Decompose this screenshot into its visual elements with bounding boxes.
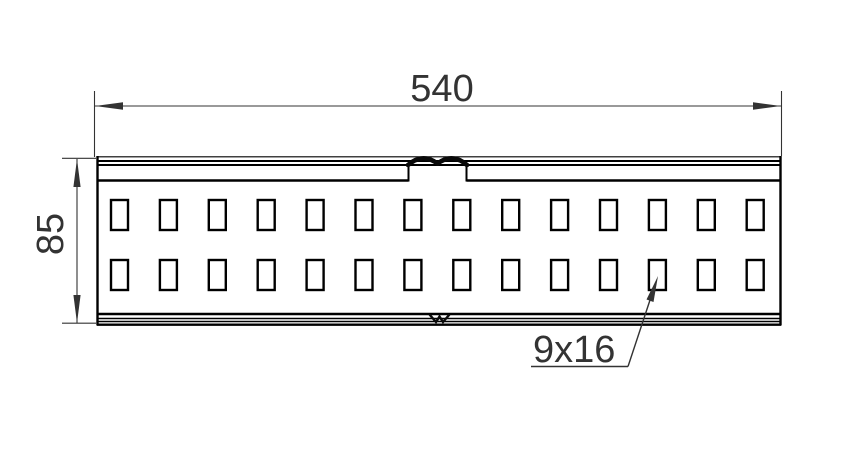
slot-hole [209,200,226,230]
slot-hole [502,260,519,290]
slot-hole [747,260,764,290]
slot-hole [160,260,177,290]
slot-size-label: 9x16 [533,329,615,371]
dimension-arrow-up-icon [73,159,80,187]
slot-hole [160,200,177,230]
dimension-arrow-right-icon [753,102,781,109]
slot-hole [404,260,421,290]
technical-drawing-canvas: 540 85 [0,0,851,465]
tray-body [97,156,781,326]
slot-hole [307,260,324,290]
slot-hole [356,200,373,230]
slot-hole [111,260,128,290]
leader-line [628,291,653,367]
slot-hole [258,260,275,290]
slot-hole [209,260,226,290]
slot-hole [698,260,715,290]
slot-hole [551,260,568,290]
slot-hole [551,200,568,230]
slot-hole [356,260,373,290]
slot-hole [600,200,617,230]
slot-hole [111,200,128,230]
slot-hole [747,200,764,230]
slot-hole [453,260,470,290]
hole-grid [111,200,764,290]
slot-hole [307,200,324,230]
dimension-arrow-down-icon [73,295,80,323]
slot-hole [502,200,519,230]
slot-hole [649,200,666,230]
height-dimension-label: 85 [30,213,72,255]
length-dimension-label: 540 [410,68,473,110]
slot-hole [698,200,715,230]
slot-hole [258,200,275,230]
slot-hole [453,200,470,230]
slot-hole [600,260,617,290]
dimension-arrow-left-icon [95,102,123,109]
slot-hole [404,200,421,230]
cable-tray-drawing: 540 85 [0,0,851,465]
slot-hole [649,260,666,290]
